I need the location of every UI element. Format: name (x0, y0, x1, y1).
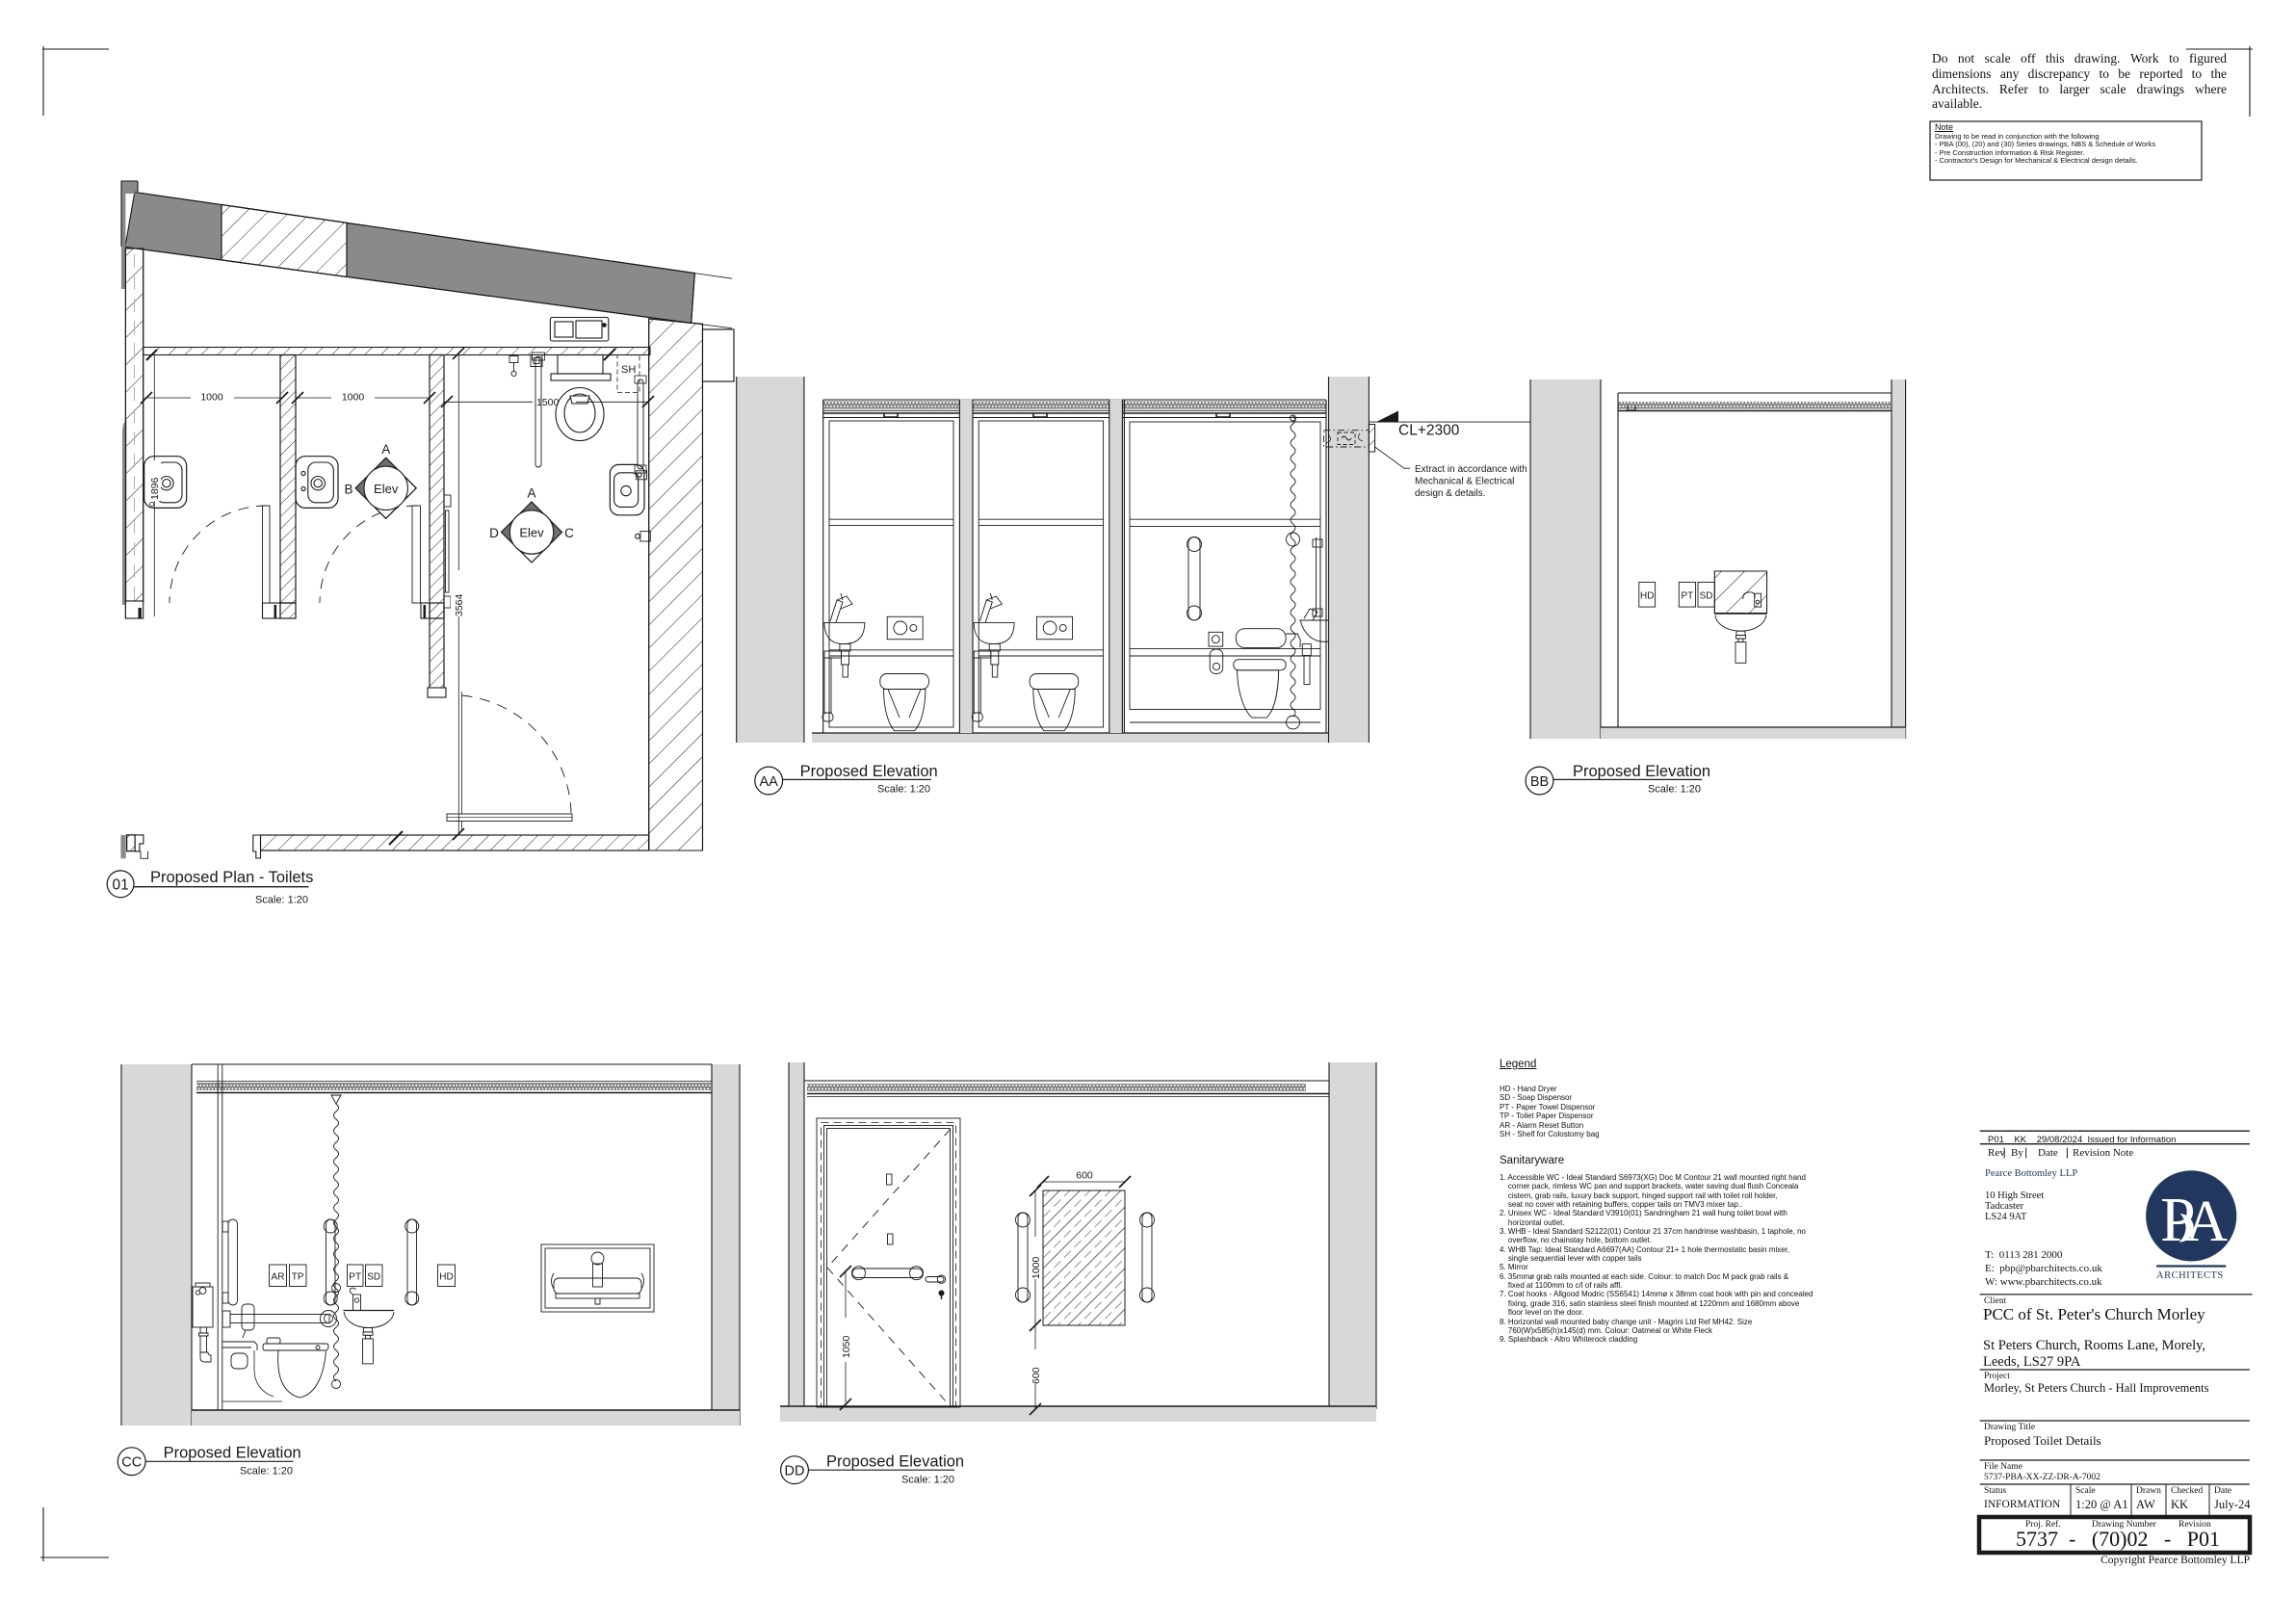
svg-text:BB: BB (1530, 774, 1549, 790)
svg-text:Proposed Elevation: Proposed Elevation (800, 763, 938, 780)
svg-text:Proposed Elevation: Proposed Elevation (164, 1445, 301, 1462)
svg-text:SD: SD (1700, 591, 1713, 602)
svg-text:Scale: 1:20: Scale: 1:20 (240, 1466, 293, 1478)
svg-text:Elev: Elev (374, 482, 399, 496)
svg-text:600: 600 (1031, 1367, 1042, 1384)
svg-text:CC: CC (121, 1455, 142, 1471)
svg-text:Scale: 1:20: Scale: 1:20 (1648, 784, 1701, 796)
svg-text:3564: 3564 (454, 593, 465, 616)
svg-text:Scale: 1:20: Scale: 1:20 (255, 895, 308, 906)
svg-text:Elev: Elev (519, 526, 544, 540)
svg-text:01: 01 (112, 877, 128, 894)
svg-text:1500: 1500 (536, 397, 560, 408)
svg-text:PT: PT (349, 1272, 361, 1283)
svg-text:DD: DD (785, 1464, 805, 1479)
svg-text:design & details.: design & details. (1415, 488, 1485, 499)
svg-text:ARCHITECTS: ARCHITECTS (2156, 1270, 2224, 1281)
svg-text:B: B (344, 483, 352, 497)
svg-text:A: A (381, 442, 390, 457)
svg-text:Scale: 1:20: Scale: 1:20 (877, 784, 930, 796)
svg-text:600: 600 (1076, 1170, 1093, 1182)
svg-text:1896: 1896 (149, 477, 161, 500)
svg-text:1000: 1000 (342, 392, 365, 404)
svg-text:PT: PT (1682, 591, 1694, 602)
svg-text:1050: 1050 (841, 1335, 852, 1358)
svg-text:Scale: 1:20: Scale: 1:20 (901, 1475, 954, 1486)
svg-text:SD: SD (367, 1272, 380, 1283)
svg-text:CL+2300: CL+2300 (1398, 423, 1460, 439)
svg-text:Mechanical & Electrical: Mechanical & Electrical (1415, 477, 1514, 487)
svg-text:A: A (527, 486, 535, 501)
svg-text:C: C (564, 526, 574, 540)
svg-text:Proposed Elevation: Proposed Elevation (1573, 763, 1710, 780)
svg-text:AA: AA (760, 774, 779, 790)
svg-text:Proposed Plan - Toilets: Proposed Plan - Toilets (150, 869, 313, 886)
svg-text:Proposed Elevation: Proposed Elevation (826, 1453, 964, 1471)
svg-text:HD: HD (439, 1272, 453, 1283)
svg-text:D: D (489, 526, 499, 540)
svg-text:TP: TP (292, 1272, 304, 1283)
svg-text:1000: 1000 (1031, 1256, 1042, 1279)
svg-text:1000: 1000 (200, 392, 223, 404)
svg-text:SH: SH (621, 364, 636, 376)
svg-text:HD: HD (1640, 591, 1654, 602)
svg-text:AR: AR (272, 1272, 285, 1283)
svg-text:Extract in accordance with: Extract in accordance with (1415, 464, 1527, 475)
